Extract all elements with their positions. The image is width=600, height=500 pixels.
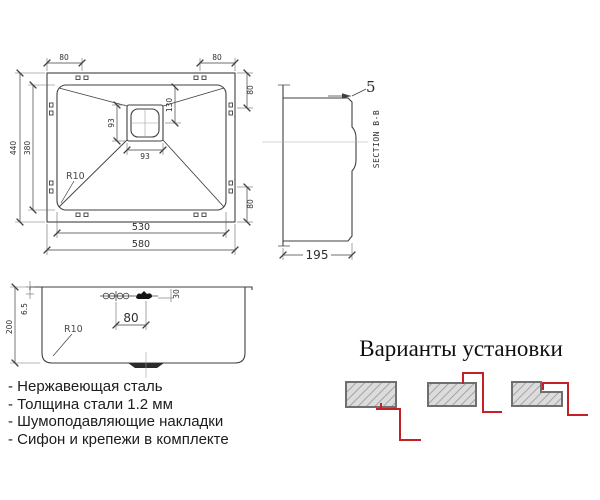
dim-drain-width: 93 (140, 152, 150, 161)
section-view: 5 SECTION B-B 195 (262, 78, 381, 262)
dim-plan-right-top: 80 (246, 85, 255, 95)
front-rim-line (30, 287, 252, 290)
dim-front-rim-height: 6.5 (20, 303, 29, 315)
dim-front-hole-spacing: 80 (123, 311, 138, 325)
front-view: 200 6.5 R10 80 30 (5, 281, 252, 378)
mounting-clips (50, 76, 233, 217)
plan-view: 440 380 530 580 80 80 80 80 93 93 130 R1… (9, 53, 255, 255)
front-corner-radius-label: R10 (64, 324, 83, 335)
dim-plan-inner-height: 380 (23, 141, 32, 156)
sink-rim-line (376, 403, 421, 440)
countertop-section (346, 382, 396, 407)
bowl-slope-lines (59, 88, 224, 207)
plan-corner-radius-label: R10 (66, 171, 85, 182)
install-diagram-undermount (346, 382, 421, 440)
dim-drain-offset: 130 (165, 98, 174, 113)
dim-plan-top-right: 80 (212, 53, 222, 62)
section-label: SECTION B-B (372, 110, 381, 168)
faucet-hole-symbol (100, 291, 132, 301)
dim-section-rim: 5 (366, 78, 376, 96)
bowl-rim (57, 85, 226, 210)
dim-plan-top-left: 80 (59, 53, 69, 62)
feature-item: - Шумоподавляющие накладки (8, 413, 229, 431)
dim-section-depth: 195 (306, 248, 329, 262)
sink-drawing-page: 440 380 530 580 80 80 80 80 93 93 130 R1… (0, 0, 600, 500)
dim-plan-outer-width: 580 (132, 239, 150, 250)
feature-item: - Толщина стали 1.2 мм (8, 396, 229, 414)
front-extension-lines (10, 281, 174, 363)
countertop-section (512, 382, 562, 406)
dim-front-overflow: 30 (172, 289, 181, 299)
install-diagram-overmount (428, 373, 502, 412)
overflow-hole-symbol (131, 291, 158, 299)
feature-item: - Нержавеющая сталь (8, 378, 229, 396)
feature-list: - Нержавеющая сталь - Толщина стали 1.2 … (8, 378, 229, 448)
feature-item: - Сифон и крепежи в комплекте (8, 431, 229, 449)
installation-title: Варианты установки (336, 336, 586, 362)
dim-front-height: 200 (5, 320, 14, 335)
dim-plan-right-bottom: 80 (246, 199, 255, 209)
dim-plan-outer-height: 440 (9, 141, 18, 156)
dim-plan-inner-width: 530 (132, 222, 150, 233)
sink-outer-edge (47, 73, 235, 222)
section-profile (283, 98, 356, 241)
install-diagram-flushmount (512, 382, 588, 415)
countertop-section (428, 383, 476, 406)
section-rim-dim (328, 89, 366, 96)
dim-drain-height: 93 (107, 118, 116, 128)
